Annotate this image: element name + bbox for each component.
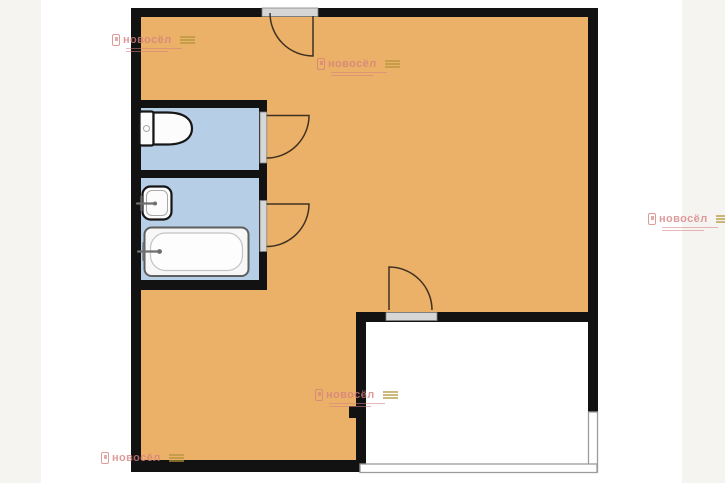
sink-icon (137, 187, 172, 220)
wall-right (588, 8, 598, 412)
toilet-tank (140, 112, 154, 146)
wet-rooms-separator-wall (131, 170, 267, 178)
toilet-door-threshold (260, 112, 267, 163)
bathtub-faucet-spout (157, 249, 162, 254)
toilet-icon (140, 112, 193, 146)
sink-faucet-spout (153, 202, 157, 206)
floorplan-canvas: новосёл новосёл новосёл новосёл (0, 0, 725, 483)
annex-left-wall (356, 312, 366, 472)
floorplan-drawing (0, 0, 725, 483)
annex-bottom-wall (360, 464, 597, 473)
toilet-room-top-wall (131, 100, 267, 108)
toilet-bowl (154, 113, 193, 145)
bathroom-door-threshold (260, 201, 267, 252)
wall-top (131, 8, 598, 17)
annex-right-wall (589, 412, 598, 472)
bathtub-icon (138, 228, 249, 277)
wall-left (131, 8, 141, 472)
bathroom-bottom-wall (131, 280, 267, 290)
wall-bottom (131, 460, 366, 472)
annex-door-threshold (386, 313, 437, 321)
wall-stub (349, 406, 356, 418)
annex-room-floor (366, 322, 588, 464)
bathtub-inner (151, 233, 243, 271)
